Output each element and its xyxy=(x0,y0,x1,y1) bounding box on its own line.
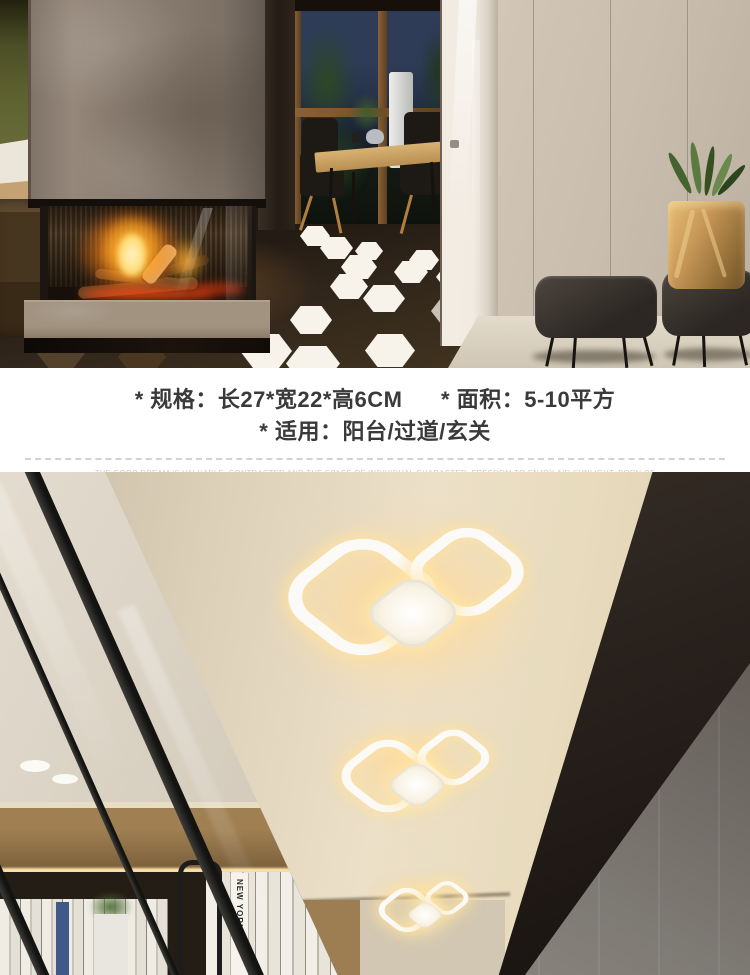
ceiling-lamp-large xyxy=(270,492,550,682)
ceiling-lamp-far xyxy=(372,870,480,944)
glass-reflection xyxy=(226,206,252,302)
door-reflection xyxy=(472,40,480,340)
hallway-ceiling-photo: NEW YORK xyxy=(0,472,750,975)
door-handle xyxy=(450,140,459,148)
dashed-divider xyxy=(25,458,725,460)
fireplace-base-slab xyxy=(24,300,270,338)
gold-paper-planter xyxy=(668,201,745,289)
table-leg xyxy=(352,172,355,222)
product-detail-page: * 规格：长27*宽22*高6CM * 面积：5-10平方 * 适用：阳台/过道… xyxy=(0,0,750,975)
spec-band: * 规格：长27*宽22*高6CM * 面积：5-10平方 * 适用：阳台/过道… xyxy=(0,368,750,472)
fireplace-plinth-shadow xyxy=(24,338,270,353)
spec-line: * 规格：长27*宽22*高6CM * 面积：5-10平方 * 适用：阳台/过道… xyxy=(0,368,750,446)
recessed-spotlight xyxy=(52,774,78,784)
dark-stool xyxy=(535,276,657,338)
ceiling-lamp-middle xyxy=(330,710,505,830)
concrete-fireplace-column xyxy=(28,0,265,202)
glass-firebox xyxy=(40,206,256,303)
white-planter xyxy=(94,914,128,975)
spec-area: * 面积：5-10平方 xyxy=(441,387,615,412)
firebox-glass-post xyxy=(40,206,48,303)
bag-crease xyxy=(674,209,696,278)
living-room-photo xyxy=(0,0,750,368)
spec-usage: * 适用：阳台/过道/玄关 xyxy=(259,419,490,444)
teapot xyxy=(366,129,384,144)
cup xyxy=(352,132,362,143)
recessed-spotlight xyxy=(20,760,50,772)
table-plant xyxy=(350,94,384,132)
bag-crease xyxy=(701,208,727,278)
spec-size: * 规格：长27*宽22*高6CM xyxy=(135,387,403,412)
fire-flame-core xyxy=(118,234,146,276)
window-lintel xyxy=(294,0,455,11)
interior-wood-shelf xyxy=(0,802,345,870)
glossy-door-panel xyxy=(440,0,500,346)
blue-book xyxy=(56,902,69,975)
wardrobe-seam xyxy=(533,0,535,331)
